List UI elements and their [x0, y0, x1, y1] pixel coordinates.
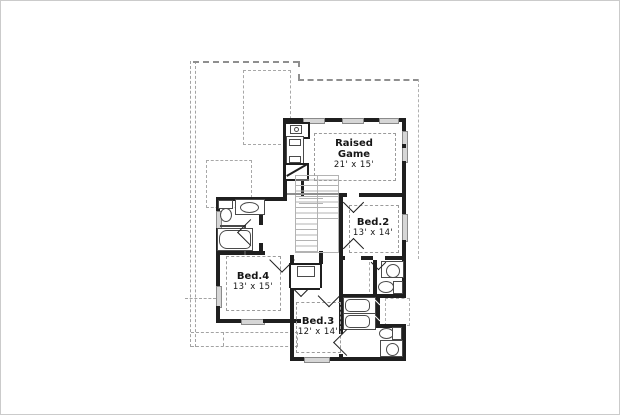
- exterior-wall: [290, 357, 304, 361]
- roof-outline-dashed: [418, 79, 419, 259]
- room-name: Game: [314, 149, 394, 160]
- room-dims: 12' x 14': [293, 327, 343, 338]
- stair-landing-line: [299, 203, 323, 204]
- window: [379, 118, 399, 124]
- exterior-wall: [362, 118, 379, 122]
- room-label-bed4: Bed.4 13' x 15': [223, 271, 283, 293]
- toilet-fixture: [393, 281, 403, 294]
- room-label-bed3: Bed.3 12' x 14': [293, 316, 343, 338]
- room-name: Raised: [314, 138, 394, 149]
- closet-rod-dashed: [369, 262, 370, 292]
- room-dims: 13' x 15': [223, 282, 283, 293]
- bathtub-fixture: [345, 315, 370, 328]
- stair-treads: [295, 175, 317, 253]
- exterior-wall: [402, 122, 406, 131]
- floor-plan-canvas: Raised Game 21' x 15' Bed.2 13' x 14' Be…: [0, 0, 620, 415]
- roof-outline-dashed: [190, 61, 191, 347]
- roof-notch-dashed: [385, 298, 410, 326]
- stair-divider: [317, 175, 318, 253]
- toilet-fixture: [392, 327, 402, 340]
- window: [342, 118, 364, 124]
- window: [241, 319, 265, 325]
- room-name: Bed.2: [349, 217, 397, 228]
- roof-outline-dashed: [193, 61, 299, 63]
- stair-landing-line: [299, 198, 323, 199]
- exterior-wall: [328, 357, 406, 361]
- room-dims: 21' x 15': [314, 160, 394, 171]
- toilet-fixture: [378, 281, 394, 293]
- sink-fixture: [240, 202, 259, 213]
- roof-outline-dashed: [185, 298, 216, 299]
- window: [304, 357, 330, 363]
- interior-wall: [259, 243, 263, 255]
- room-label-bed2: Bed.2 13' x 14': [349, 217, 397, 239]
- interior-wall: [216, 251, 265, 255]
- interior-wall: [361, 256, 373, 260]
- roof-outline-dashed: [298, 61, 300, 80]
- chase: [289, 156, 301, 163]
- room-name: Bed.3: [293, 316, 343, 327]
- interior-wall: [359, 193, 406, 197]
- window: [216, 286, 222, 308]
- closet-shelf: [297, 266, 315, 277]
- sink-fixture: [386, 343, 399, 356]
- room-dims: 13' x 14': [349, 228, 397, 239]
- roof-outline-dashed: [191, 332, 298, 333]
- roof-outline-dashed: [195, 61, 196, 347]
- niche-dot: [294, 127, 299, 132]
- roof-outline-dashed: [298, 79, 419, 81]
- exterior-wall: [402, 161, 406, 214]
- roof-outline-dashed: [223, 332, 224, 346]
- chase: [289, 139, 301, 146]
- room-name: Bed.4: [223, 271, 283, 282]
- exterior-wall: [216, 319, 241, 323]
- exterior-wall: [323, 118, 342, 122]
- roof-outline-dashed: [191, 346, 298, 347]
- room-label-raised-game: Raised Game 21' x 15': [314, 138, 394, 171]
- stair-railing: [287, 193, 339, 195]
- window: [402, 214, 408, 242]
- interior-wall: [385, 256, 406, 260]
- window-mullion: [402, 144, 406, 148]
- bathtub-fixture: [345, 299, 370, 312]
- toilet-fixture: [220, 208, 232, 222]
- exterior-wall: [216, 306, 220, 319]
- sink-fixture: [386, 264, 400, 278]
